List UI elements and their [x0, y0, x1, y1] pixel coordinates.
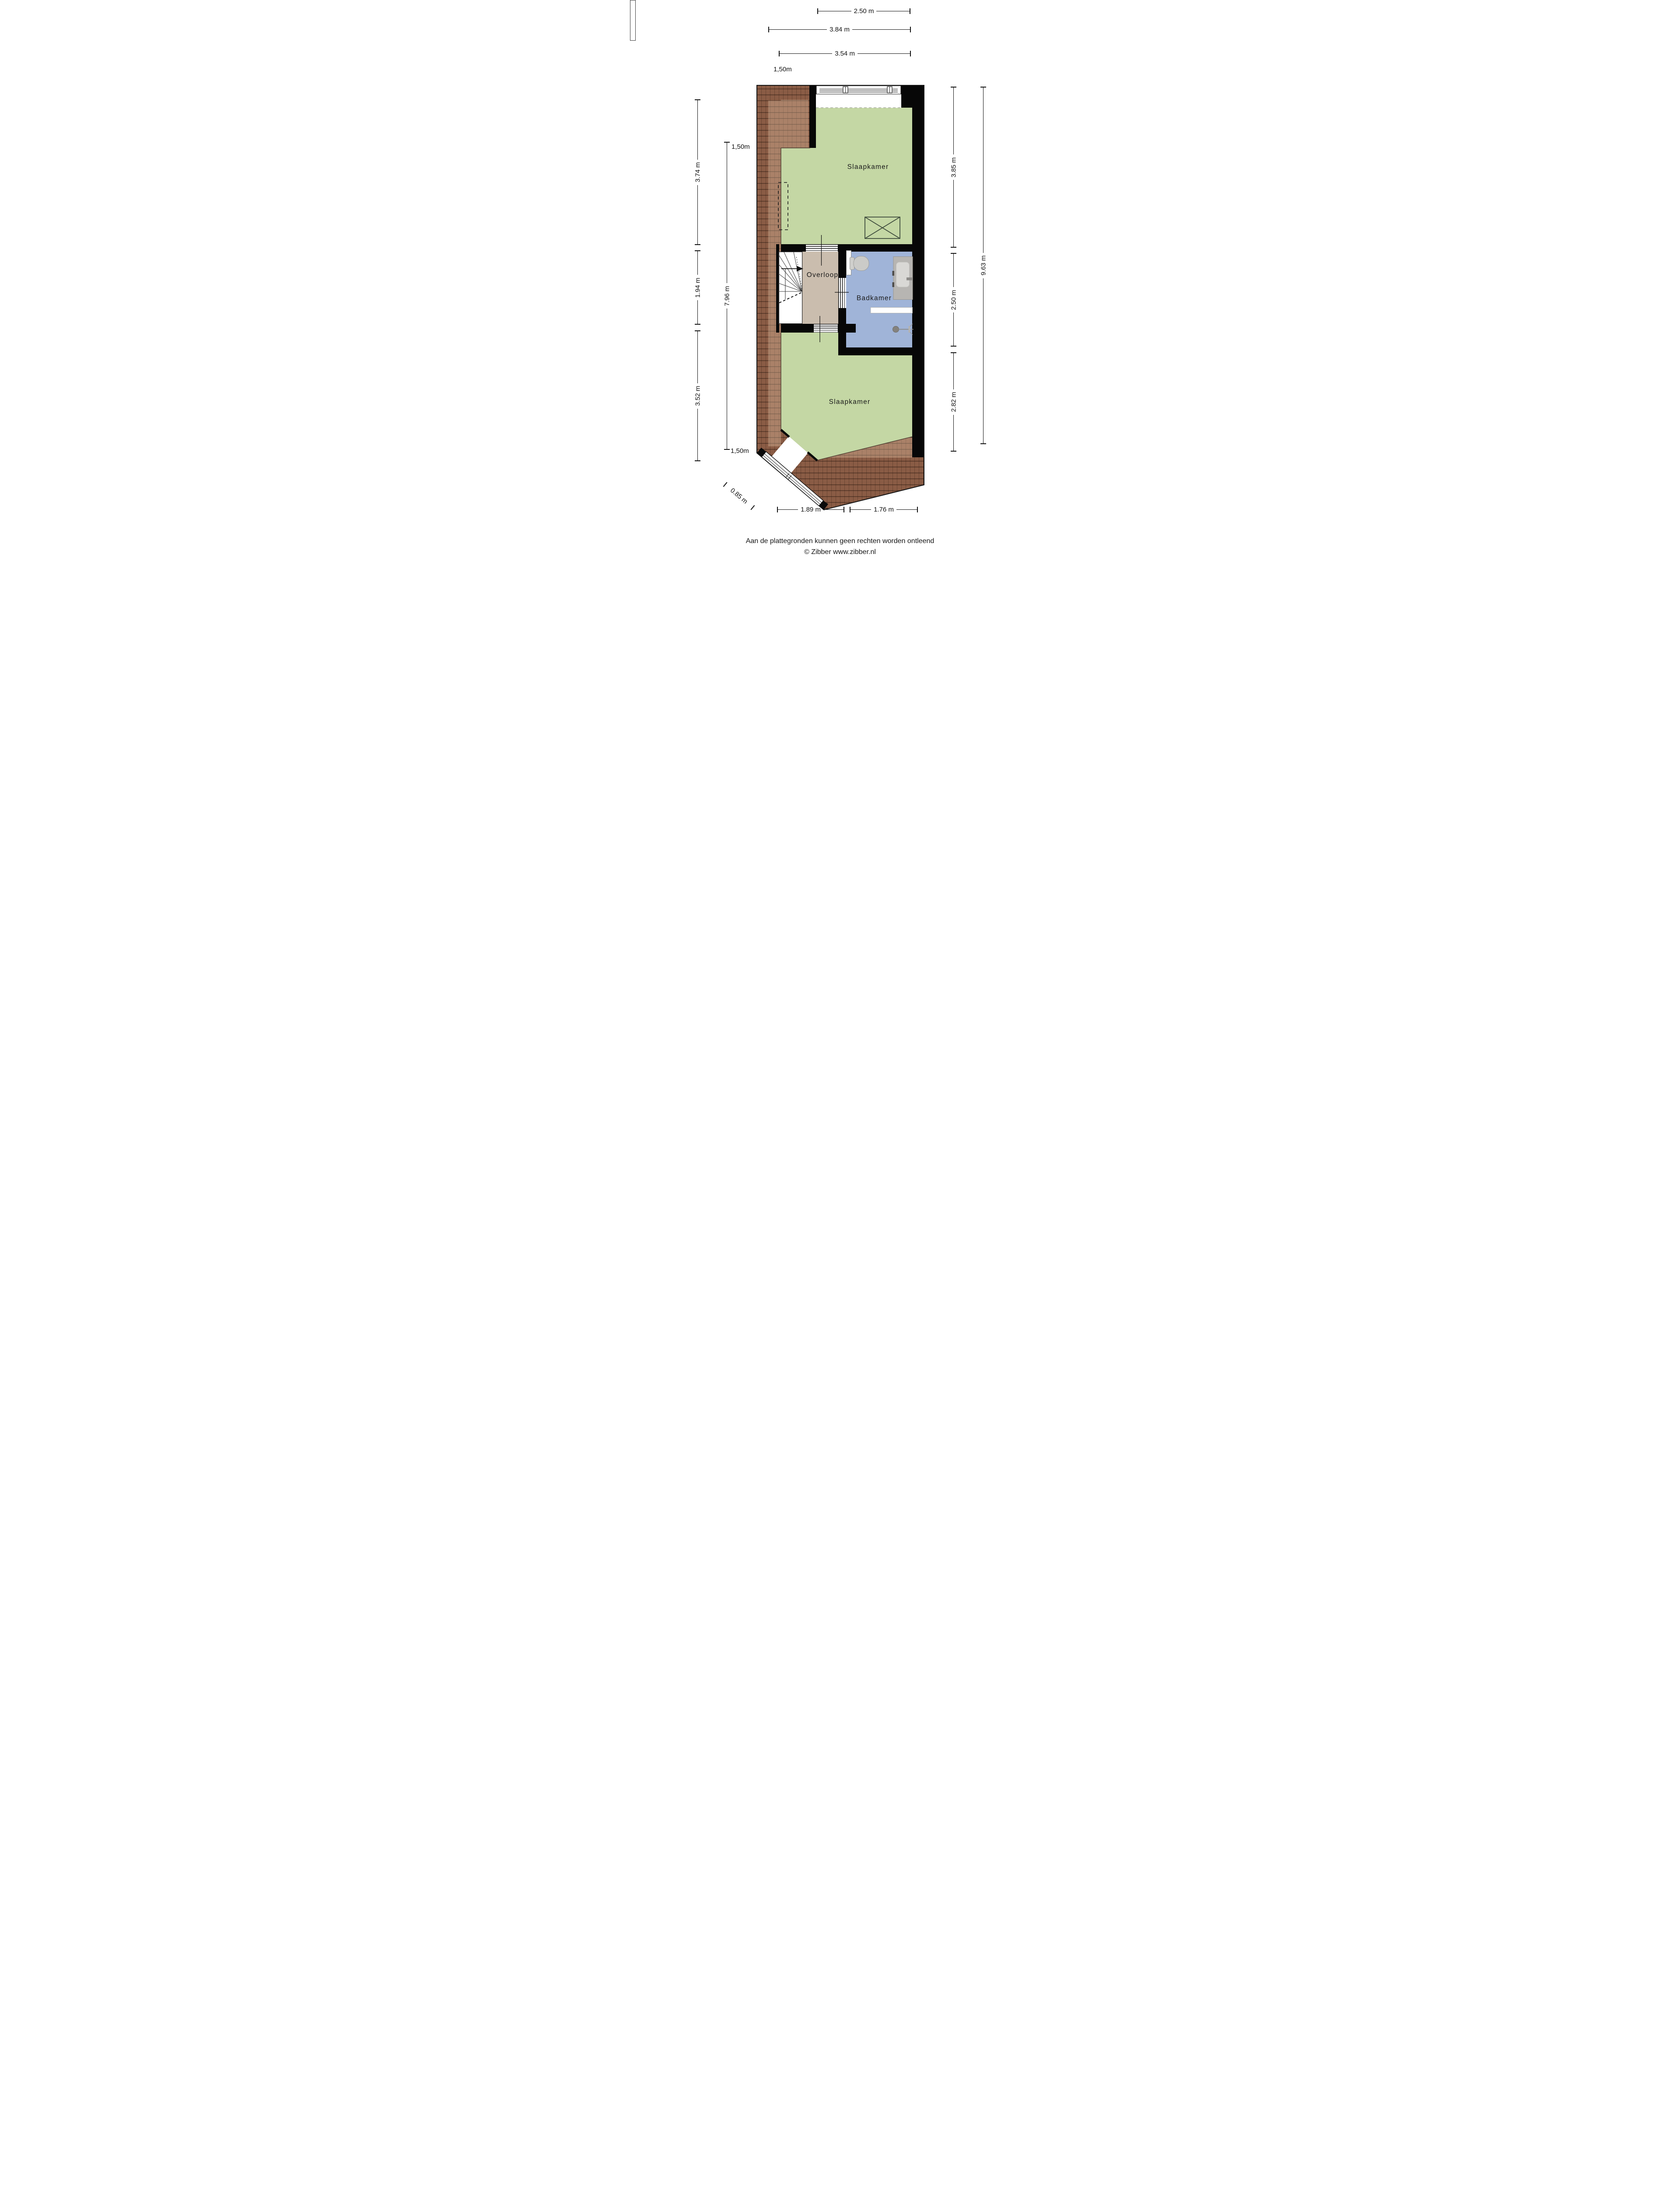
dim-label: 1.89 m [798, 506, 823, 513]
room-label-bedroom-top: Slaapkamer [847, 163, 889, 171]
headroom-marker-left-top: 1,50m [731, 143, 750, 151]
section-lines [820, 235, 849, 342]
diagonal-window-icon [757, 430, 828, 510]
dim-label: 1.94 m [694, 275, 701, 300]
headroom-marker-top: 1,50m [773, 66, 792, 73]
dormer-dashed-outline [778, 182, 788, 230]
dim-right-total: 9.63 m [980, 87, 987, 444]
roof-edge-lines [781, 148, 912, 460]
footer-copyright: © Zibber www.zibber.nl [630, 548, 1050, 556]
dim-label: 2.50 m [851, 8, 877, 14]
footer-disclaimer: Aan de plattegronden kunnen geen rechten… [630, 537, 1050, 545]
dim-left-landing: 1.94 m [694, 250, 701, 325]
dim-right-bedroom-bottom: 2.82 m [950, 352, 957, 452]
dim-label: 2.50 m [950, 287, 957, 312]
room-label-bedroom-bottom: Slaapkamer [829, 398, 871, 406]
room-label-landing: Overloop [807, 271, 839, 279]
dim-top-window-width: 2.50 m [817, 8, 910, 14]
headroom-marker-left-bottom: 1,50m [731, 447, 749, 455]
dim-bottom-right: 1.76 m [850, 506, 918, 513]
dim-label: 3.85 m [950, 154, 957, 180]
dim-left-bedroom-top: 3.74 m [694, 99, 701, 245]
dim-label: 3.52 m [694, 383, 701, 409]
skylight-icon [865, 217, 900, 238]
window-icon [816, 86, 901, 108]
shower-icon [893, 324, 914, 335]
stairs-icon [778, 252, 803, 324]
washbasin-icon [892, 257, 913, 300]
dim-label: 3.74 m [694, 160, 701, 185]
dim-left-bedroom-bottom: 3.52 m [694, 330, 701, 461]
bathroom-shelf [871, 308, 913, 313]
dim-right-bedroom-top: 3.85 m [950, 87, 957, 248]
dim-label: 9.63 m [980, 253, 987, 278]
plan-linework [630, 0, 1050, 560]
dim-label: 7.96 m [724, 283, 730, 309]
dim-right-bathroom: 2.50 m [950, 253, 957, 347]
dim-label: 3.54 m [832, 50, 857, 57]
dim-top-inner-width: 3.54 m [779, 50, 911, 57]
dim-bottom-left: 1.89 m [777, 506, 844, 513]
dim-top-outer-width: 3.84 m [768, 26, 911, 33]
toilet-icon [850, 256, 869, 271]
dim-label: 3.84 m [827, 26, 852, 33]
dim-label: 1.76 m [871, 506, 896, 513]
dim-left-total-headroom: 7.96 m [724, 142, 730, 450]
floorplan-canvas: Slaapkamer Overloop Badkamer Slaapkamer … [630, 0, 1050, 560]
dim-label: 2.82 m [950, 389, 957, 415]
room-label-bathroom: Badkamer [857, 295, 892, 302]
